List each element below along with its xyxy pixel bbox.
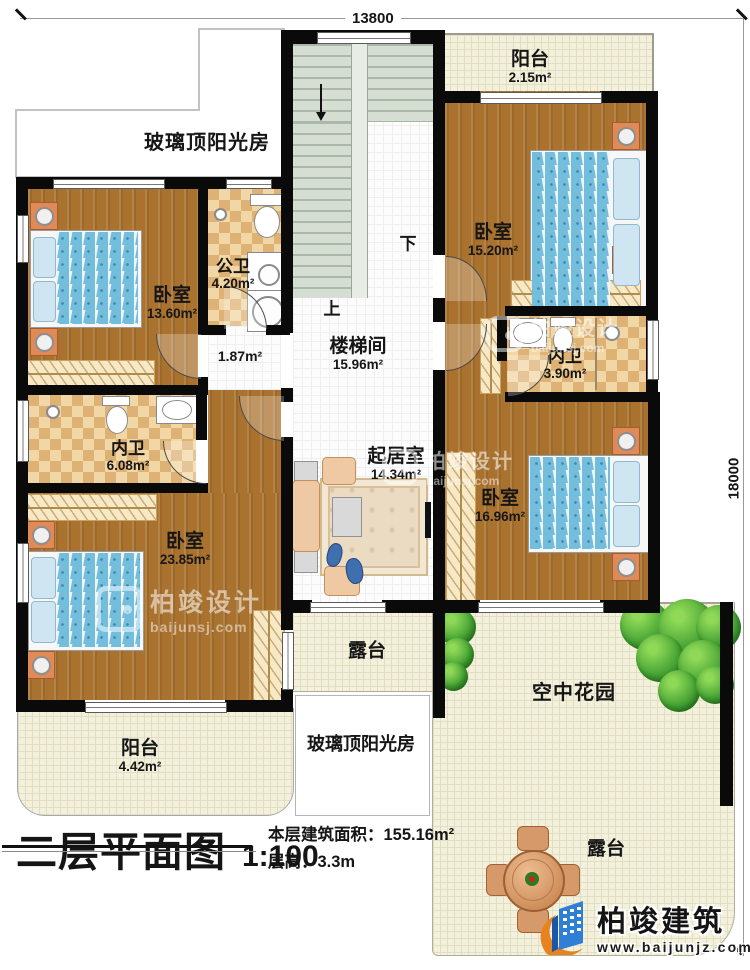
pillow	[31, 557, 56, 599]
wardrobe	[446, 452, 476, 602]
toilet-tank	[102, 396, 130, 406]
room-area: 2.15m²	[509, 70, 552, 85]
wall	[433, 298, 445, 322]
window	[53, 179, 165, 189]
window	[310, 602, 386, 613]
lamp	[35, 207, 54, 226]
pillow	[33, 237, 56, 278]
tv	[425, 502, 431, 538]
side-table	[294, 461, 318, 481]
mattress	[530, 457, 610, 549]
side-table	[294, 551, 318, 573]
room-area: 6.08m²	[107, 458, 150, 473]
nightstand	[612, 427, 640, 455]
toilet	[254, 206, 280, 238]
chair	[517, 826, 549, 851]
room-label-sunroom-top: 玻璃顶阳光房	[144, 132, 270, 154]
room-name: 内卫	[107, 439, 150, 458]
brand-logo-icon	[538, 897, 590, 955]
window	[317, 32, 411, 44]
room-area: 1.87m²	[218, 349, 262, 365]
stair-down-label: 下	[400, 230, 417, 255]
plan-title: 二层平面图	[16, 818, 226, 878]
wall	[505, 392, 660, 402]
floor-area-value: 155.16m²	[384, 826, 455, 844]
window	[647, 320, 659, 380]
toilet-tank	[550, 317, 576, 327]
window	[478, 602, 604, 613]
room-label-bath-left: 内卫 6.08m²	[107, 439, 150, 473]
room-label-bedroom-top-right: 卧室 15.20m²	[468, 222, 518, 258]
room-name: 卧室	[147, 285, 197, 306]
wall	[505, 306, 657, 316]
wall	[288, 600, 312, 613]
wall	[281, 437, 293, 602]
pillow	[613, 505, 640, 547]
pillow	[613, 224, 640, 286]
wall	[266, 325, 290, 335]
room-label-bath-right: 内卫 3.90m²	[544, 347, 587, 381]
window	[282, 632, 294, 690]
wall	[600, 91, 657, 103]
lamp	[617, 432, 636, 451]
room-label-balcony-bottom-left: 阳台 4.42m²	[119, 738, 162, 774]
room-area: 23.85m²	[160, 552, 210, 567]
shower-partition	[595, 318, 597, 390]
pillow	[613, 158, 640, 220]
wall	[433, 370, 445, 602]
brand-site: www.baijunjz.com	[597, 939, 750, 955]
pillow	[31, 601, 56, 643]
right-dimension-line	[743, 18, 744, 956]
wall	[433, 602, 445, 718]
lamp	[32, 526, 51, 545]
window	[85, 702, 227, 713]
shower-drain	[258, 264, 280, 286]
wall	[196, 395, 207, 440]
room-label-stair-hall: 楼梯间 15.96m²	[329, 336, 386, 372]
top-dimension-label: 13800	[345, 10, 401, 27]
room-label-bedroom-top-left: 卧室 13.60m²	[147, 285, 197, 321]
armchair	[322, 457, 356, 485]
room-label-bedroom-bottom-right: 卧室 16.96m²	[475, 488, 525, 524]
window	[17, 215, 29, 263]
room-area: 16.96m²	[475, 509, 525, 524]
room-area: 4.20m²	[212, 276, 255, 291]
stair-arrow-head	[316, 112, 326, 121]
room-name: 公卫	[212, 257, 255, 276]
room-name: 内卫	[544, 347, 587, 366]
right-dimension-label: 18000	[725, 451, 742, 507]
title-underline-thin	[2, 851, 256, 852]
room-name: 玻璃顶阳光房	[144, 132, 270, 154]
room-name: 露台	[348, 640, 386, 661]
room-name: 玻璃顶阳光房	[307, 734, 415, 754]
coffee-table	[332, 497, 362, 537]
stair-up-label: 上	[324, 295, 341, 320]
room-name: 露台	[587, 838, 625, 859]
wall	[198, 180, 208, 332]
room-label-terrace-bottom-right: 露台	[587, 838, 625, 859]
brand-logo: 柏竣建筑 www.baijunjz.com	[538, 897, 750, 955]
floor-height-label: 层高：	[268, 853, 318, 871]
nightstand	[27, 521, 55, 549]
lamp	[617, 127, 636, 146]
wardrobe	[27, 360, 155, 388]
room-area: 4.42m²	[119, 759, 162, 774]
sunroom-top-outline	[14, 27, 288, 181]
room-area: 15.96m²	[329, 357, 386, 372]
stair-divider	[351, 44, 368, 298]
room-label-hallway: 1.87m²	[218, 349, 262, 365]
wall	[648, 395, 660, 612]
window	[480, 92, 602, 104]
floor-area-line: 本层建筑面积：155.16m²	[268, 822, 454, 849]
brand-name: 柏竣建筑	[597, 898, 750, 940]
lamp	[617, 558, 636, 577]
mattress	[532, 152, 610, 308]
room-name: 空中花园	[532, 682, 616, 704]
shower-head	[604, 325, 620, 341]
room-label-bedroom-bottom-left: 卧室 23.85m²	[160, 531, 210, 567]
toilet	[106, 406, 128, 434]
room-area: 15.20m²	[468, 243, 518, 258]
nightstand	[30, 202, 58, 230]
stair-arrow	[320, 84, 322, 114]
stairs-left-flight	[293, 122, 351, 298]
shower-hose	[46, 405, 60, 419]
bush	[658, 670, 700, 712]
room-area: 3.90m²	[544, 366, 587, 381]
wall	[16, 385, 208, 395]
room-name: 阳台	[119, 738, 162, 759]
nightstand	[27, 651, 55, 679]
mattress	[56, 232, 138, 324]
room-name: 卧室	[468, 222, 518, 243]
wall	[497, 316, 507, 361]
room-area: 14.34m²	[367, 467, 424, 482]
wall	[382, 600, 480, 613]
sofa	[292, 480, 320, 552]
room-name: 起居室	[367, 446, 424, 467]
room-label-balcony-top-right: 阳台 2.15m²	[509, 49, 552, 85]
wall	[433, 30, 445, 255]
wall	[720, 602, 733, 806]
room-label-sunroom-bottom: 玻璃顶阳光房	[307, 734, 415, 754]
wall	[646, 91, 658, 313]
wall	[225, 700, 292, 712]
title-stats: 本层建筑面积：155.16m² 层高：3.3m	[268, 822, 454, 876]
room-area: 13.60m²	[147, 306, 197, 321]
sunroom-bottom-box	[295, 695, 430, 816]
pillow	[613, 461, 640, 503]
table-flower	[525, 872, 539, 886]
window	[226, 179, 272, 189]
floor-plan-canvas: 13800 18000	[0, 0, 750, 970]
floor-drain	[214, 208, 227, 221]
nightstand	[612, 122, 640, 150]
wardrobe	[27, 494, 157, 521]
window	[17, 400, 29, 462]
lamp	[32, 656, 51, 675]
room-name: 阳台	[509, 49, 552, 70]
nightstand	[612, 553, 640, 581]
room-label-living: 起居室 14.34m²	[367, 446, 424, 482]
wall	[600, 600, 660, 613]
floor-height-line: 层高：3.3m	[268, 849, 454, 876]
room-label-terrace-mid: 露台	[348, 640, 386, 661]
nightstand	[30, 328, 58, 356]
wall	[433, 91, 480, 103]
toilet-tank	[250, 194, 284, 206]
sink	[162, 400, 192, 420]
wall	[16, 483, 208, 493]
room-name: 卧室	[160, 531, 210, 552]
sink	[513, 322, 543, 344]
room-name: 楼梯间	[329, 336, 386, 357]
pillow	[33, 281, 56, 322]
room-label-sky-garden: 空中花园	[532, 682, 616, 704]
mattress	[56, 553, 140, 647]
floor-height-value: 3.3m	[318, 853, 356, 871]
floor-area-label: 本层建筑面积：	[268, 826, 384, 844]
window	[17, 543, 29, 603]
room-name: 卧室	[475, 488, 525, 509]
lamp	[35, 333, 54, 352]
room-label-public-bath: 公卫 4.20m²	[212, 257, 255, 291]
wall	[16, 700, 85, 712]
title-underline	[2, 845, 252, 848]
wall	[198, 325, 226, 335]
